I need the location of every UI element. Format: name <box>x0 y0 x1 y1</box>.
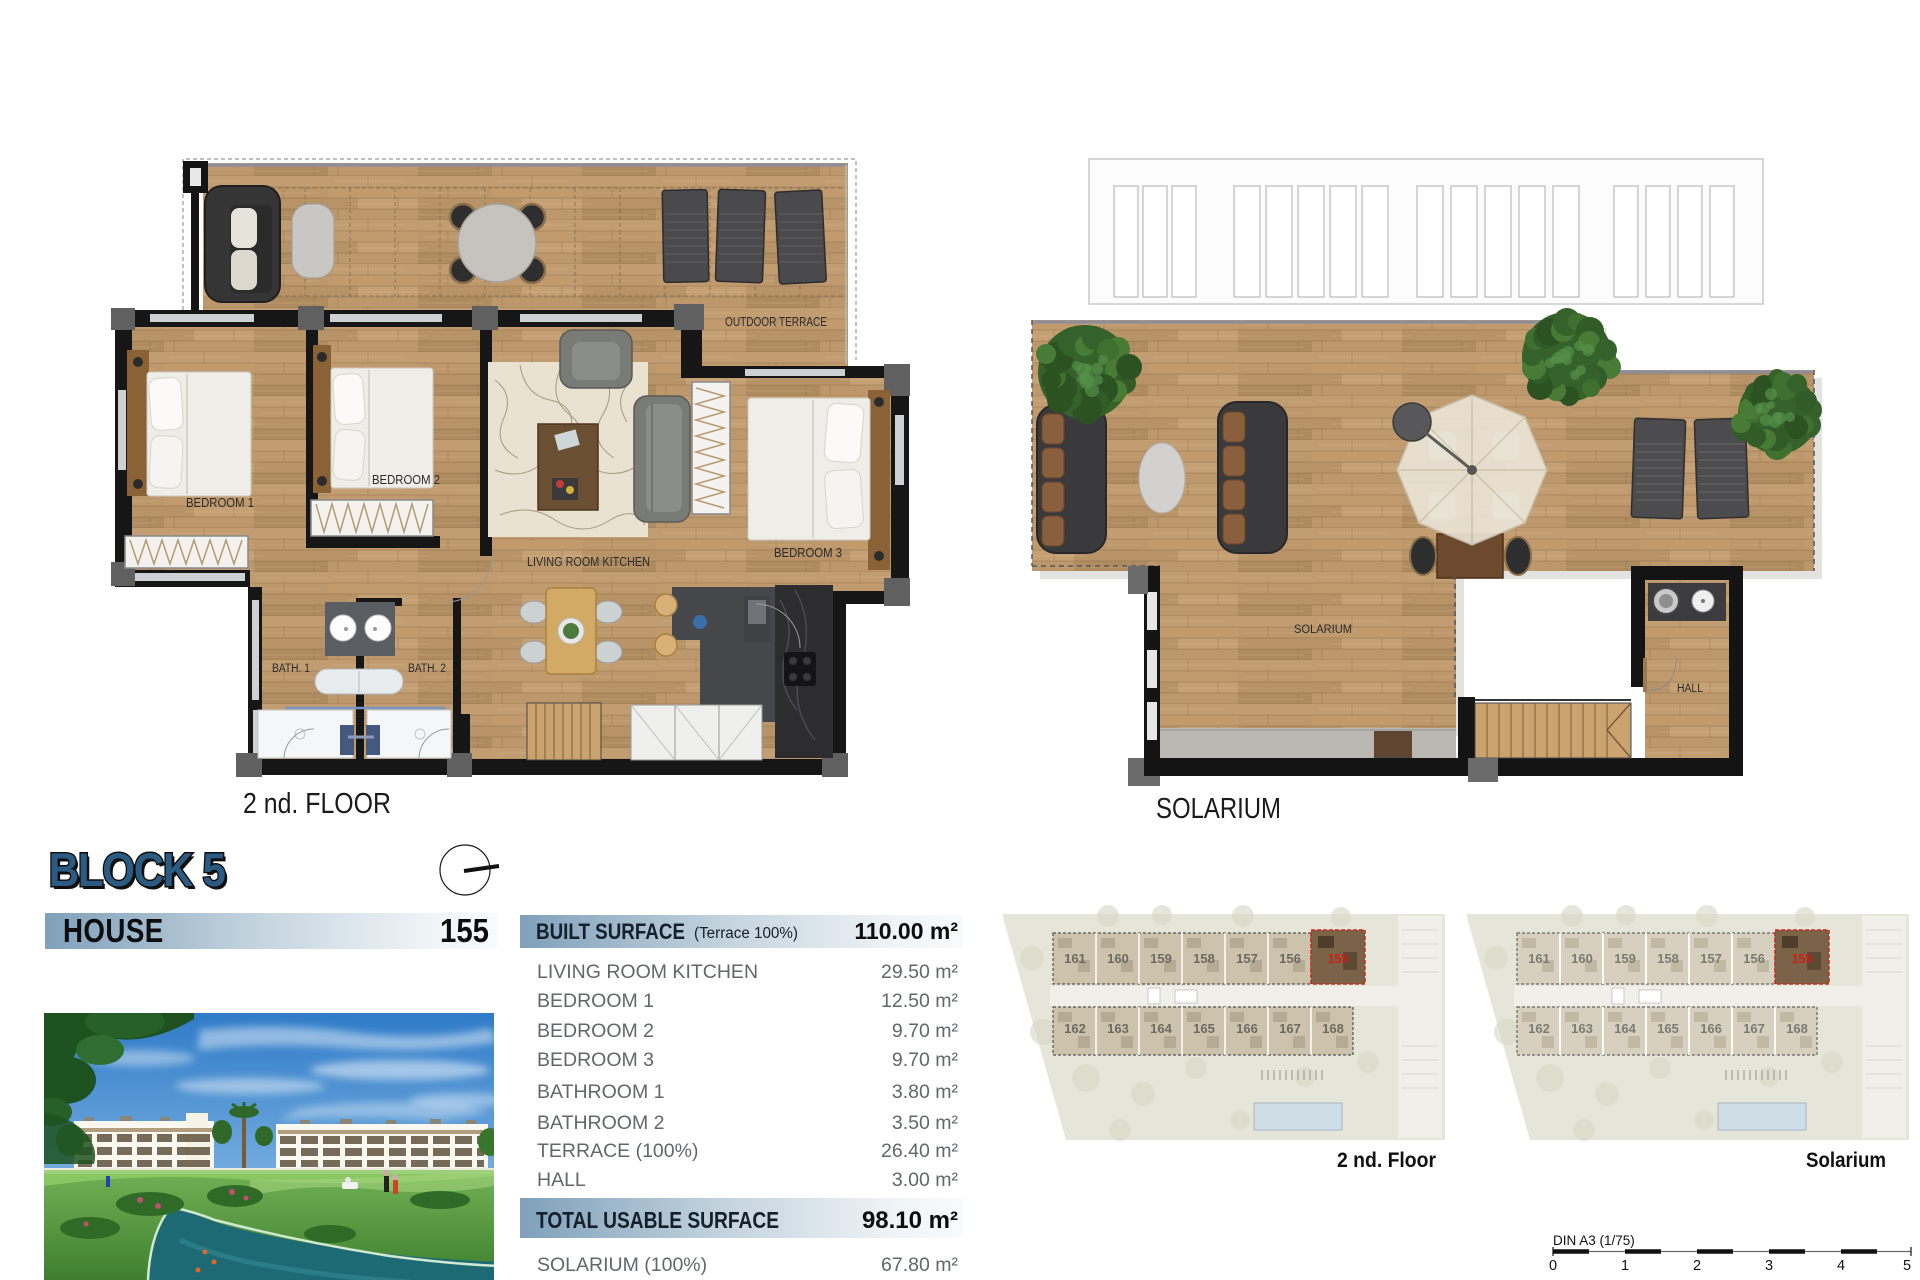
svg-text:158: 158 <box>1657 951 1679 966</box>
svg-text:159: 159 <box>1150 951 1172 966</box>
svg-text:4: 4 <box>1837 1258 1845 1274</box>
svg-text:3.50 m²: 3.50 m² <box>892 1112 959 1134</box>
svg-text:BATHROOM 1: BATHROOM 1 <box>537 1081 664 1103</box>
svg-text:167: 167 <box>1279 1021 1301 1036</box>
svg-text:TOTAL USABLE SURFACE: TOTAL USABLE SURFACE <box>536 1207 779 1233</box>
svg-text:163: 163 <box>1571 1021 1593 1036</box>
svg-text:158: 158 <box>1193 951 1215 966</box>
svg-text:29.50 m²: 29.50 m² <box>881 961 958 983</box>
svg-text:BATH. 1: BATH. 1 <box>272 663 310 675</box>
svg-text:67.80 m²: 67.80 m² <box>881 1254 958 1276</box>
svg-text:166: 166 <box>1236 1021 1258 1036</box>
svg-text:BATH. 2: BATH. 2 <box>408 663 446 675</box>
svg-text:157: 157 <box>1700 951 1722 966</box>
svg-text:162: 162 <box>1064 1021 1086 1036</box>
svg-text:9.70 m²: 9.70 m² <box>892 1049 959 1071</box>
svg-text:155: 155 <box>1792 952 1813 966</box>
svg-text:163: 163 <box>1107 1021 1129 1036</box>
svg-text:157: 157 <box>1236 951 1258 966</box>
svg-text:165: 165 <box>1657 1021 1679 1036</box>
svg-text:BEDROOM 2: BEDROOM 2 <box>537 1020 654 1042</box>
svg-text:160: 160 <box>1107 951 1129 966</box>
svg-text:HOUSE: HOUSE <box>63 913 164 950</box>
svg-text:5: 5 <box>1903 1258 1911 1274</box>
svg-text:2 nd. Floor: 2 nd. Floor <box>1337 1149 1436 1172</box>
svg-text:165: 165 <box>1193 1021 1215 1036</box>
svg-text:BEDROOM 1: BEDROOM 1 <box>537 990 654 1012</box>
svg-text:3.80 m²: 3.80 m² <box>892 1081 959 1103</box>
svg-text:SOLARIUM (100%): SOLARIUM (100%) <box>537 1254 707 1276</box>
svg-text:DIN A3 (1/75): DIN A3 (1/75) <box>1553 1233 1635 1248</box>
svg-text:168: 168 <box>1322 1021 1344 1036</box>
svg-text:161: 161 <box>1528 951 1550 966</box>
svg-text:3.00 m²: 3.00 m² <box>892 1169 959 1191</box>
svg-text:OUTDOOR TERRACE: OUTDOOR TERRACE <box>725 315 827 329</box>
svg-text:98.10 m²: 98.10 m² <box>862 1207 958 1234</box>
svg-text:SOLARIUM: SOLARIUM <box>1156 793 1281 825</box>
svg-text:164: 164 <box>1150 1021 1172 1036</box>
svg-text:BEDROOM 1: BEDROOM 1 <box>186 496 254 510</box>
svg-text:1: 1 <box>1621 1258 1629 1274</box>
svg-text:160: 160 <box>1571 951 1593 966</box>
svg-text:110.00 m²: 110.00 m² <box>854 918 958 944</box>
svg-text:Solarium: Solarium <box>1806 1149 1886 1172</box>
svg-text:164: 164 <box>1614 1021 1636 1036</box>
svg-text:159: 159 <box>1614 951 1636 966</box>
svg-text:BLOCK 5: BLOCK 5 <box>49 843 225 897</box>
svg-text:26.40 m²: 26.40 m² <box>881 1140 958 1162</box>
svg-text:166: 166 <box>1700 1021 1722 1036</box>
svg-text:BEDROOM 3: BEDROOM 3 <box>537 1049 654 1071</box>
svg-text:SOLARIUM: SOLARIUM <box>1294 624 1352 636</box>
svg-text:3: 3 <box>1765 1258 1773 1274</box>
svg-text:BEDROOM 2: BEDROOM 2 <box>372 473 440 487</box>
svg-text:2 nd. FLOOR: 2 nd. FLOOR <box>243 788 391 820</box>
svg-text:156: 156 <box>1279 951 1301 966</box>
svg-text:155: 155 <box>440 912 489 949</box>
svg-text:161: 161 <box>1064 951 1086 966</box>
svg-text:LIVING ROOM KITCHEN: LIVING ROOM KITCHEN <box>527 555 650 569</box>
svg-text:(Terrace 100%): (Terrace 100%) <box>694 925 798 942</box>
svg-text:TERRACE (100%): TERRACE (100%) <box>537 1140 698 1162</box>
svg-text:162: 162 <box>1528 1021 1550 1036</box>
svg-text:HALL: HALL <box>1677 683 1704 695</box>
svg-text:9.70 m²: 9.70 m² <box>892 1020 959 1042</box>
svg-text:2: 2 <box>1693 1258 1701 1274</box>
svg-text:HALL: HALL <box>537 1169 586 1191</box>
svg-text:168: 168 <box>1786 1021 1808 1036</box>
svg-text:155: 155 <box>1328 952 1349 966</box>
svg-text:BEDROOM 3: BEDROOM 3 <box>774 546 842 560</box>
svg-text:12.50 m²: 12.50 m² <box>881 990 958 1012</box>
svg-text:BUILT SURFACE: BUILT SURFACE <box>536 919 685 944</box>
svg-text:156: 156 <box>1743 951 1765 966</box>
svg-text:0: 0 <box>1549 1258 1557 1274</box>
svg-text:167: 167 <box>1743 1021 1765 1036</box>
svg-text:LIVING ROOM KITCHEN: LIVING ROOM KITCHEN <box>537 961 758 983</box>
svg-text:BATHROOM 2: BATHROOM 2 <box>537 1112 664 1134</box>
